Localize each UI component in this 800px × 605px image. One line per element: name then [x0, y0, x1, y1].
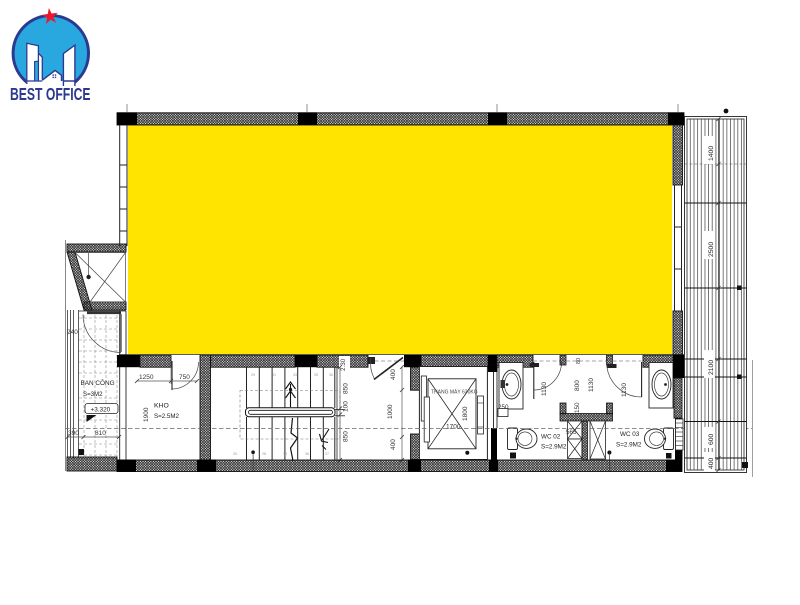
svg-text:KHO: KHO — [154, 403, 169, 410]
svg-text:2100: 2100 — [708, 360, 715, 375]
svg-text:36: 36 — [329, 373, 333, 377]
svg-text:390: 390 — [68, 430, 79, 437]
svg-text:1900: 1900 — [143, 407, 150, 422]
svg-text:36: 36 — [305, 452, 309, 456]
svg-text:2.30: 2.30 — [340, 358, 347, 371]
svg-text:30: 30 — [233, 452, 237, 456]
svg-text:810: 810 — [95, 430, 106, 437]
svg-text:29: 29 — [251, 373, 255, 377]
svg-text:150: 150 — [574, 402, 581, 413]
svg-text:BAN CÔNG: BAN CÔNG — [81, 378, 115, 387]
svg-text:S=2.5M2: S=2.5M2 — [154, 413, 179, 420]
svg-text:S=3M2: S=3M2 — [83, 391, 103, 398]
svg-text:WC 03: WC 03 — [620, 431, 640, 438]
svg-text:28: 28 — [262, 452, 266, 456]
svg-text:34: 34 — [283, 452, 287, 456]
svg-text:240: 240 — [67, 329, 78, 336]
svg-text:850: 850 — [343, 383, 350, 394]
svg-text:1130: 1130 — [588, 378, 595, 392]
svg-text:1400: 1400 — [708, 146, 715, 161]
svg-text:1000: 1000 — [387, 404, 394, 419]
svg-text:33: 33 — [293, 373, 297, 377]
svg-text:565: 565 — [566, 429, 577, 436]
svg-text:WC 02: WC 02 — [541, 434, 561, 441]
svg-text:35: 35 — [314, 373, 318, 377]
svg-text:750: 750 — [179, 374, 190, 381]
svg-text:80: 80 — [576, 358, 582, 364]
svg-text:1250: 1250 — [139, 374, 154, 381]
svg-text:THANG MÁY 630KG: THANG MÁY 630KG — [431, 389, 478, 396]
svg-text:400: 400 — [390, 439, 397, 450]
svg-text:1700: 1700 — [446, 424, 461, 431]
svg-text:1800: 1800 — [462, 406, 469, 421]
svg-text:1130: 1130 — [541, 382, 548, 396]
svg-text:100: 100 — [343, 401, 350, 412]
svg-text:37: 37 — [325, 452, 329, 456]
svg-text:400: 400 — [390, 369, 397, 380]
svg-text:S=2.9M2: S=2.9M2 — [541, 444, 567, 451]
svg-text:1130: 1130 — [621, 383, 628, 397]
svg-text:31: 31 — [272, 373, 276, 377]
svg-text:400: 400 — [708, 457, 715, 469]
svg-text:+3.320: +3.320 — [91, 406, 111, 413]
svg-text:S=2.9M2: S=2.9M2 — [616, 442, 642, 449]
svg-text:BEST OFFICE: BEST OFFICE — [10, 84, 91, 104]
svg-text:2500: 2500 — [708, 242, 715, 257]
svg-text:850: 850 — [343, 431, 350, 442]
svg-text:600: 600 — [708, 433, 715, 445]
svg-text:800: 800 — [574, 380, 581, 391]
